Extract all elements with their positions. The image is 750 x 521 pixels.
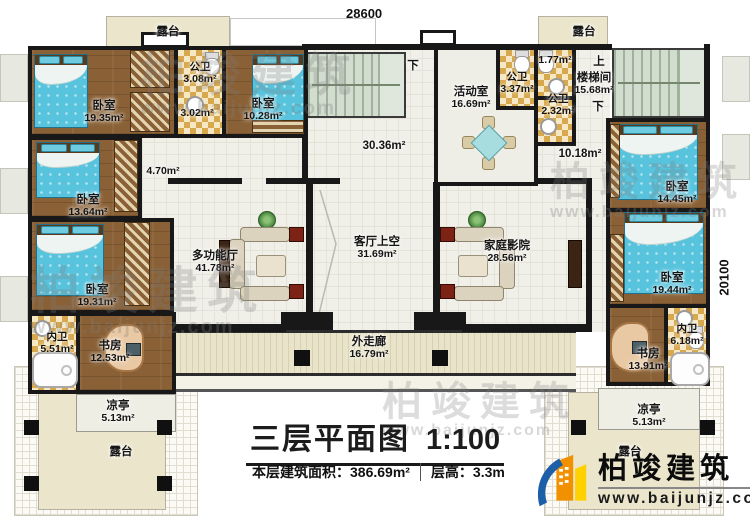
wall bbox=[168, 324, 286, 332]
bedroom-6-label: 卧室19.44m² bbox=[652, 272, 691, 297]
drawing-subtitle: 本层建筑面积：386.69m² 层高：3.3m bbox=[252, 462, 505, 482]
bed-icon bbox=[36, 142, 100, 198]
pavilion-1-label: 凉亭5.13m² bbox=[101, 400, 134, 425]
stairs-down-label-right: 下 bbox=[592, 101, 604, 114]
hall-470-label: 4.70m² bbox=[146, 166, 179, 178]
roof-tab bbox=[0, 276, 28, 322]
wall bbox=[586, 182, 592, 332]
wall bbox=[306, 182, 313, 316]
outer-corridor-label: 外走廊16.79m² bbox=[349, 336, 388, 361]
bedroom-4-label: 卧室19.31m² bbox=[77, 284, 116, 309]
column bbox=[571, 420, 586, 435]
roof-tab bbox=[722, 134, 750, 180]
activity-label: 活动室16.69m² bbox=[451, 86, 490, 111]
brand-url: www.baijunjz.com bbox=[598, 487, 750, 508]
column bbox=[157, 476, 172, 491]
roof-outline bbox=[230, 18, 376, 46]
hall-302-label: 3.02m² bbox=[180, 108, 213, 120]
column bbox=[700, 420, 715, 435]
multi-hall-label: 多功能厅41.78m² bbox=[192, 250, 238, 275]
wall bbox=[168, 178, 242, 184]
dimension-right: 20100 bbox=[717, 248, 732, 308]
page-title: 三层平面图 bbox=[250, 414, 410, 458]
washbasin-icon bbox=[540, 118, 557, 135]
hall-177-label: 1.77m² bbox=[538, 55, 571, 67]
hall-1018-label: 10.18m² bbox=[559, 148, 602, 161]
roof-tab bbox=[0, 168, 28, 214]
drawing-title: 三层平面图 1:100 bbox=[246, 414, 504, 466]
stairs-up-label: 上 bbox=[593, 56, 605, 69]
bedroom-2-label: 卧室10.28m² bbox=[243, 98, 282, 123]
stairs-right-icon bbox=[612, 48, 706, 118]
wardrobe-icon bbox=[130, 92, 170, 132]
dimension-top: 28600 bbox=[346, 6, 382, 21]
terrace-bottom-left-label: 露台 bbox=[110, 446, 133, 459]
theater-label: 家庭影院28.56m² bbox=[484, 240, 530, 265]
bathtub-icon bbox=[670, 352, 710, 386]
column bbox=[294, 350, 310, 366]
column bbox=[24, 420, 39, 435]
wardrobe-icon bbox=[124, 222, 150, 306]
wardrobe-icon bbox=[130, 50, 170, 88]
study-2-label: 书房13.91m² bbox=[628, 348, 667, 373]
drawing-scale: 1:100 bbox=[426, 424, 500, 457]
wall bbox=[433, 182, 440, 316]
stairs-left-icon bbox=[306, 52, 406, 118]
brand-logo: 柏竣建筑 www.baijunjz.com bbox=[534, 450, 750, 512]
terrace-top-left-label: 露台 bbox=[157, 26, 180, 39]
roof-bay bbox=[420, 30, 456, 46]
wall bbox=[462, 324, 592, 332]
wardrobe-icon bbox=[610, 124, 620, 198]
divider bbox=[420, 463, 421, 481]
column bbox=[432, 350, 448, 366]
bed-icon bbox=[34, 54, 88, 128]
column bbox=[157, 420, 172, 435]
stairwell-label: 楼梯间15.68m² bbox=[574, 72, 613, 97]
wall bbox=[414, 312, 466, 330]
wall bbox=[704, 44, 710, 122]
private-bath-1-label: 内卫5.51m² bbox=[40, 332, 73, 356]
wall bbox=[266, 178, 308, 184]
wardrobe-icon bbox=[114, 140, 138, 212]
wall bbox=[281, 312, 333, 330]
stairs-down-label-left: 下 bbox=[407, 60, 419, 73]
wardrobe-icon bbox=[610, 234, 624, 302]
bedroom-1-label: 卧室19.35m² bbox=[84, 100, 123, 125]
bedroom-3-label: 卧室13.64m² bbox=[68, 194, 107, 219]
column bbox=[24, 476, 39, 491]
toilet-icon bbox=[514, 50, 530, 73]
roof-tab bbox=[0, 54, 28, 102]
public-bath-2-label: 公卫3.37m² bbox=[500, 72, 533, 96]
sofa-set-icon bbox=[228, 214, 304, 312]
study-1-label: 书房12.53m² bbox=[90, 340, 129, 365]
pavilion-2-label: 凉亭5.13m² bbox=[632, 404, 665, 429]
tv-cabinet-icon bbox=[568, 240, 582, 288]
bathtub-icon bbox=[32, 352, 78, 388]
brand-name: 柏竣建筑 bbox=[598, 455, 750, 484]
stair-rail bbox=[618, 82, 700, 84]
private-bath-2-label: 内卫6.18m² bbox=[670, 324, 703, 348]
terrace-top-right-label: 露台 bbox=[573, 26, 596, 39]
public-bath-1-label: 公卫3.08m² bbox=[183, 62, 216, 86]
bedroom-5-label: 卧室14.45m² bbox=[657, 181, 696, 206]
dining-table-icon bbox=[462, 116, 516, 170]
baijun-logo-icon bbox=[534, 450, 590, 512]
living-void-label: 客厅上空31.69m² bbox=[354, 236, 400, 261]
stair-rail bbox=[312, 84, 400, 86]
floor-height-label: 层高：3.3m bbox=[431, 462, 505, 482]
public-bath-3-label: 公卫2.32m² bbox=[541, 94, 574, 118]
stair-hall-label: 30.36m² bbox=[363, 140, 406, 153]
floor-plan: 露台 露台 卧室19.35m² 公卫3.08m² 3.02m² 卧室10.28m… bbox=[0, 0, 750, 521]
floor-area-label: 本层建筑面积：386.69m² bbox=[252, 462, 410, 482]
void-fold-line bbox=[312, 186, 342, 322]
corridor-edge bbox=[168, 376, 576, 392]
roof-tab bbox=[722, 56, 750, 102]
